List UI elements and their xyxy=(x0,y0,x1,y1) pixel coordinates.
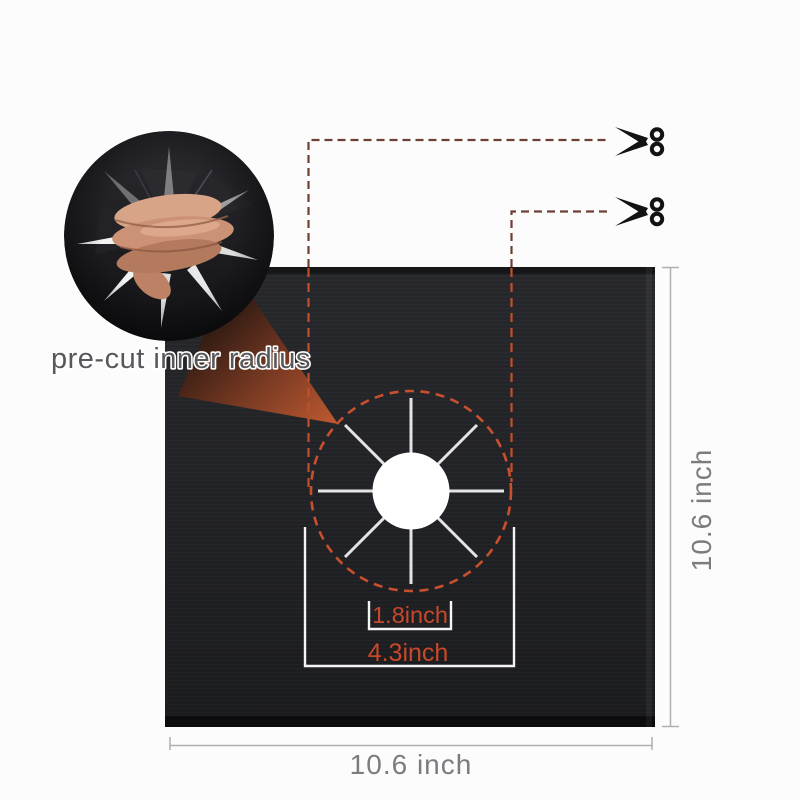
mat-bottom-edge xyxy=(165,716,655,727)
product-dimension-diagram: 1.8inch 4.3inch 10.6 inch 10.6 inch xyxy=(0,0,800,800)
callout-label: pre-cut inner radius xyxy=(51,343,311,375)
width-dimension-label: 10.6 inch xyxy=(350,749,473,780)
diagram-canvas: 1.8inch 4.3inch 10.6 inch 10.6 inch xyxy=(0,0,800,800)
center-hole xyxy=(373,453,450,530)
outer-diameter-label: 4.3inch xyxy=(368,639,449,667)
inset-vignette xyxy=(64,131,274,341)
inset-photo xyxy=(64,131,274,341)
burner-cutout xyxy=(311,391,511,591)
mat-right-sheen xyxy=(646,267,652,727)
inner-diameter-label: 1.8inch xyxy=(372,602,448,628)
callout-inset xyxy=(64,131,274,341)
height-dimension-label: 10.6 inch xyxy=(686,449,717,572)
